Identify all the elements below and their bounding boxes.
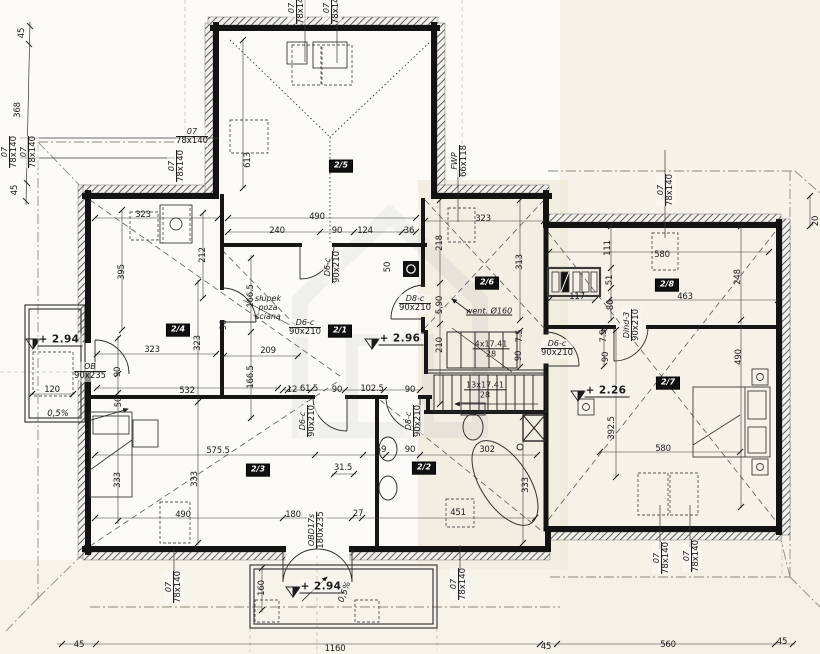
floor-plan-sheet: 2/52/42/12/62/82/72/32/20778x1400778x140… [0, 0, 820, 654]
floor-plan-drawing [0, 0, 820, 654]
